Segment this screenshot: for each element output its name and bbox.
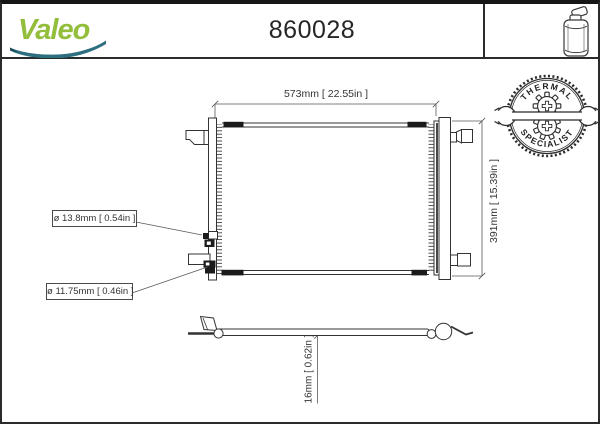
core-bottom-rail: [222, 271, 429, 275]
right-fin-edge: [429, 124, 435, 273]
height-dimension-line: [452, 121, 482, 276]
right-side-plate: [439, 118, 451, 280]
core-top-rail: [222, 123, 429, 127]
top-left-bracket: [186, 131, 209, 145]
catalog-page: Valeo 860028 THERMAL SPECIALIST: [0, 0, 600, 424]
side-view-left-fitting: [214, 329, 223, 338]
side-view-core-bar: [218, 329, 430, 336]
top-right-bracket-outer: [462, 130, 473, 143]
port-bottom-diameter-label: ø 11.75mm [ 0.46in ]: [46, 283, 133, 300]
width-dimension-line: [215, 104, 436, 118]
side-view-right-fitting-large: [435, 323, 451, 339]
left-fin-edge: [217, 124, 223, 275]
bottom-right-pad: [412, 270, 428, 276]
port-top-diameter-label: ø 13.8mm [ 0.54in ]: [52, 210, 137, 227]
bottom-right-bracket-inner: [451, 255, 458, 266]
top-right-pad: [408, 122, 427, 127]
bottom-right-bracket-outer: [458, 254, 471, 267]
height-dimension-label: 391mm [ 15.39in ]: [488, 159, 500, 243]
side-view-right-pipe: [451, 327, 473, 335]
top-right-bracket-inner: [451, 133, 457, 143]
top-left-pad: [224, 122, 244, 127]
bottom-left-pad: [222, 270, 244, 276]
width-dimension-label: 573mm [ 22.55in ]: [226, 88, 426, 100]
side-view-drawing: [188, 317, 473, 340]
thickness-dimension-label: 16mm [ 0.62in ]: [304, 335, 315, 404]
front-view-drawing: [186, 118, 473, 281]
leader-line-port-bottom: [132, 267, 208, 293]
leader-line-port-top: [136, 222, 202, 235]
side-view-right-fitting-small: [427, 330, 436, 339]
